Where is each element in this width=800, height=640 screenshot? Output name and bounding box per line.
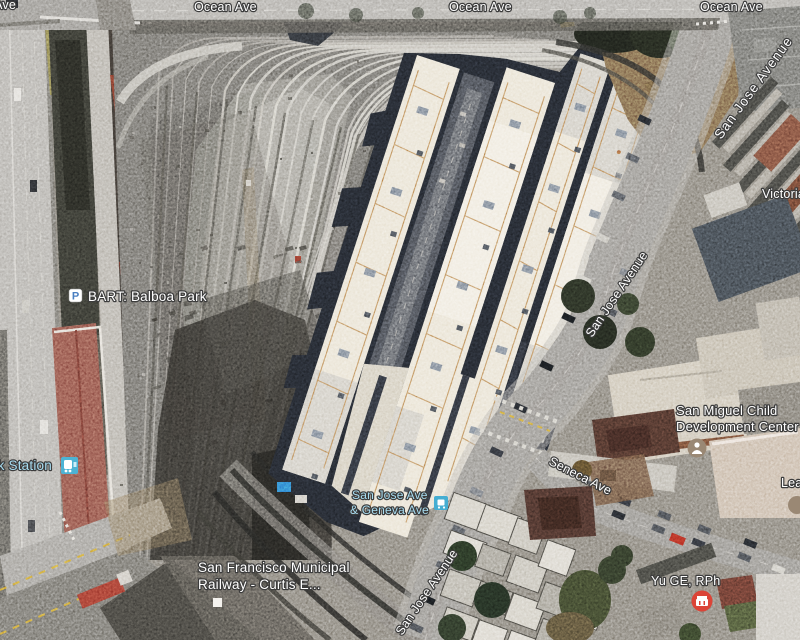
svg-text:& Geneva Ave: & Geneva Ave — [350, 503, 429, 517]
svg-text:San Francisco Municipal: San Francisco Municipal — [198, 560, 350, 575]
svg-text:Ocean Ave: Ocean Ave — [194, 0, 257, 14]
svg-text:Railway - Curtis E...: Railway - Curtis E... — [198, 577, 321, 592]
svg-text:Ocean Ave: Ocean Ave — [700, 0, 763, 14]
svg-text:Yu GE, RPh: Yu GE, RPh — [651, 574, 720, 588]
svg-text:San Miguel Child: San Miguel Child — [676, 403, 777, 418]
svg-text:Lea: Lea — [781, 476, 800, 490]
svg-text:Park Station: Park Station — [0, 458, 52, 473]
svg-text:P: P — [72, 291, 79, 303]
svg-text:Ocean Ave: Ocean Ave — [449, 0, 512, 14]
svg-text:Development Center: Development Center — [676, 419, 799, 434]
svg-text:San Jose Ave: San Jose Ave — [352, 488, 428, 502]
svg-text:Victoria: Victoria — [762, 187, 800, 201]
svg-text:Ocean Ave: Ocean Ave — [0, 0, 16, 12]
svg-text:BART: Balboa Park: BART: Balboa Park — [88, 289, 207, 304]
